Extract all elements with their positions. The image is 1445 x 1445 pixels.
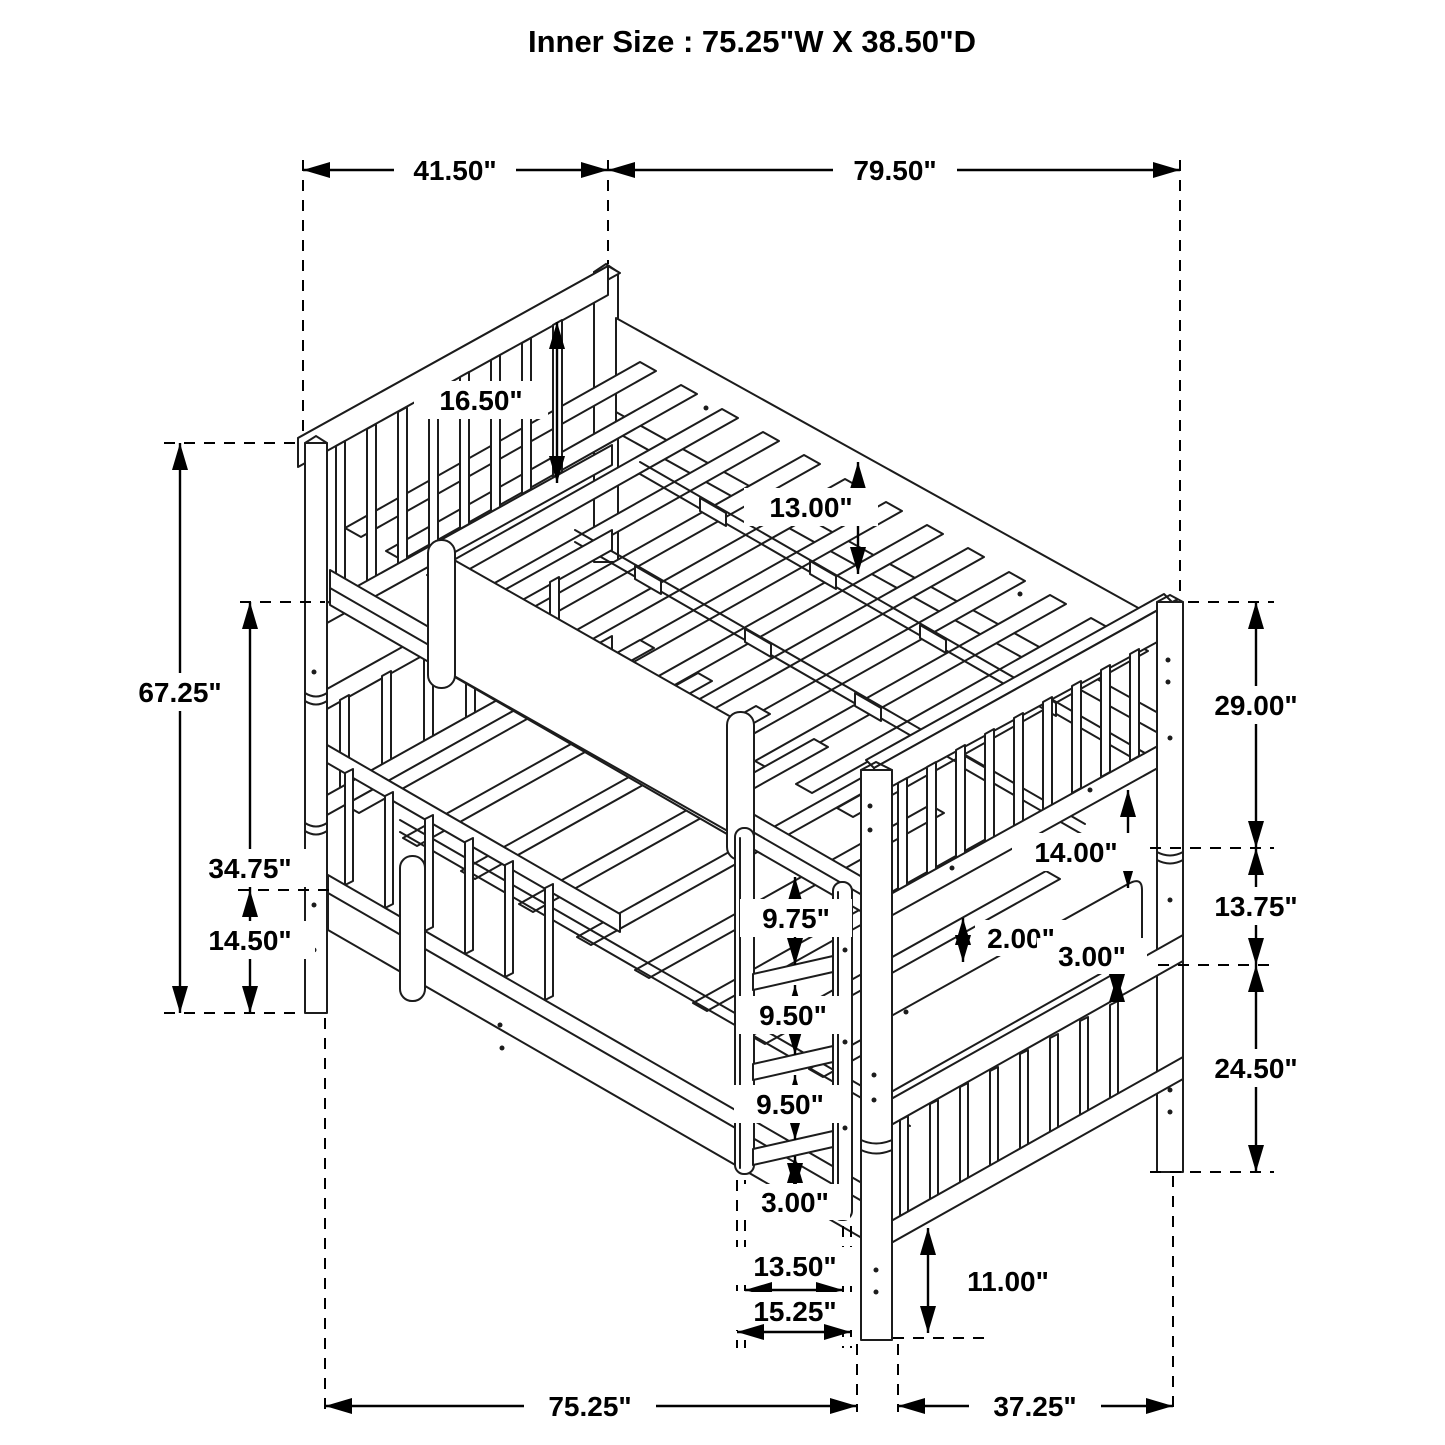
dim-ladder-outer-width: 15.25"	[733, 1292, 857, 1332]
front-post	[861, 762, 892, 1340]
dim-upper-rail-height: 34.75"	[185, 602, 315, 890]
dim-right-lower: 24.50"	[1191, 965, 1321, 1172]
dim-label-side-rail-height: 13.00"	[769, 492, 852, 523]
dim-label-right-middle: 13.75"	[1214, 891, 1297, 922]
dim-label-lower-rail-height: 14.50"	[208, 925, 291, 956]
dim-lower-rail-height: 14.50"	[185, 890, 315, 1013]
dim-label-right-lower: 24.50"	[1214, 1053, 1297, 1084]
dim-label-ladder-step-1: 9.75"	[762, 903, 830, 934]
dim-top-depth: 41.50"	[303, 151, 608, 188]
dim-label-footboard-gap: 14.00"	[1034, 837, 1117, 868]
dim-label-ladder-step-2: 9.50"	[759, 1000, 827, 1031]
dim-right-upper: 29.00"	[1191, 602, 1321, 848]
dim-bottom-depth: 37.25"	[898, 1387, 1173, 1425]
dim-ladder-inner-width: 13.50"	[733, 1247, 857, 1290]
dim-label-top-depth: 41.50"	[413, 155, 496, 186]
dim-leg-height: 11.00"	[928, 1228, 1074, 1333]
dim-label-bottom-depth: 37.25"	[993, 1391, 1076, 1422]
dim-label-top-width: 79.50"	[853, 155, 936, 186]
dim-label-leg-height: 11.00"	[967, 1266, 1049, 1297]
dim-label-foot-rail-thickness: 3.00"	[1058, 941, 1126, 972]
dim-label-ladder-inner-width: 13.50"	[753, 1251, 836, 1282]
dim-label-headboard-rail: 16.50"	[439, 385, 522, 416]
page-title: Inner Size : 75.25"W X 38.50"D	[528, 24, 976, 59]
bed-drawing	[298, 264, 1183, 1340]
dim-label-bottom-width: 75.25"	[548, 1391, 631, 1422]
bunk-bed-dimension-diagram: 41.50" 79.50" 67.25" 34.75" 14.50" 16.50…	[0, 0, 1445, 1445]
dim-label-upper-rail-height: 34.75"	[208, 853, 291, 884]
diagram-canvas: 41.50" 79.50" 67.25" 34.75" 14.50" 16.50…	[0, 0, 1445, 1445]
dim-top-width: 79.50"	[608, 151, 1180, 188]
dim-label-ladder-step-4: 3.00"	[761, 1187, 829, 1218]
dim-bottom-width: 75.25"	[325, 1387, 857, 1425]
dim-label-right-upper: 29.00"	[1214, 690, 1297, 721]
dim-label-overall-height: 67.25"	[138, 677, 221, 708]
dim-right-middle: 13.75"	[1191, 848, 1321, 965]
dim-label-ladder-outer-width: 15.25"	[753, 1296, 836, 1327]
dim-label-ladder-step-3: 9.50"	[756, 1089, 824, 1120]
